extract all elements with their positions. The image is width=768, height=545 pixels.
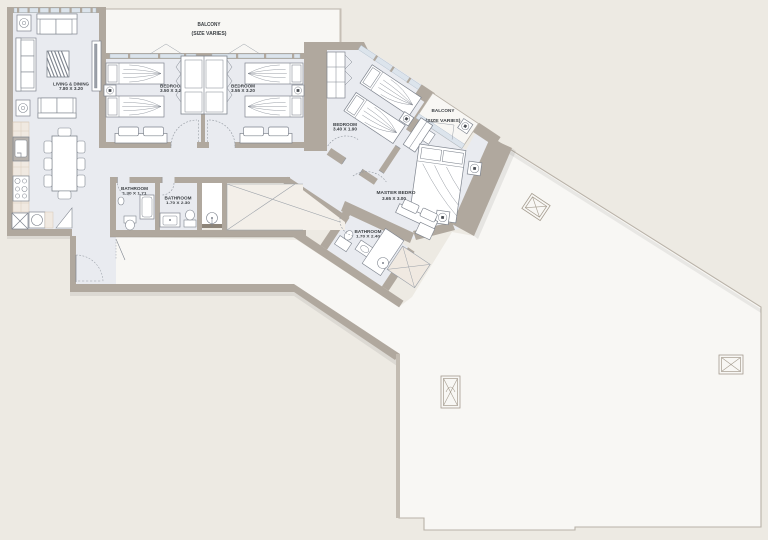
svg-text:BALCONY: BALCONY xyxy=(432,108,456,114)
svg-text:1.70 X 2.40: 1.70 X 2.40 xyxy=(356,234,381,239)
svg-text:BALCONY: BALCONY xyxy=(198,22,221,28)
svg-text:1.70 X 2.30: 1.70 X 2.30 xyxy=(166,200,191,205)
svg-text:3.65 X 3.00: 3.65 X 3.00 xyxy=(382,196,407,201)
svg-text:3.55 X 3.20: 3.55 X 3.20 xyxy=(231,88,256,93)
svg-text:7.80 X 3.20: 7.80 X 3.20 xyxy=(59,86,84,91)
svg-text:(SIZE VARIES): (SIZE VARIES) xyxy=(426,118,461,124)
svg-text:3.40 X 1.90: 3.40 X 1.90 xyxy=(333,127,358,132)
svg-text:(SIZE VARIES): (SIZE VARIES) xyxy=(192,31,227,37)
svg-text:MASTER BEDRO: MASTER BEDRO xyxy=(377,190,417,195)
